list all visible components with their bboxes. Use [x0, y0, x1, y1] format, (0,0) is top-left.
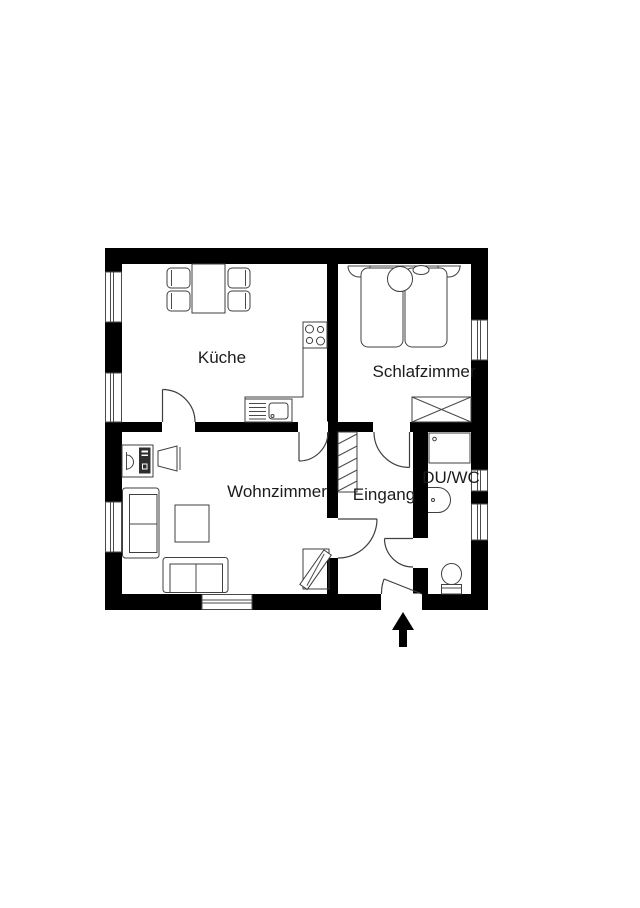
sofa	[123, 488, 160, 558]
sink	[245, 399, 292, 422]
window-bedroom-right	[472, 320, 488, 360]
room-label-living-room: Wohnzimmer	[227, 482, 327, 501]
computer-tower-icon	[140, 448, 151, 473]
room-label-kitchen: Küche	[198, 348, 246, 367]
entrance-furniture	[338, 432, 357, 492]
chair	[228, 291, 250, 311]
living-room-furniture	[122, 445, 331, 593]
chair	[167, 268, 190, 288]
double-bed	[348, 266, 461, 348]
door-living-kitchen	[299, 432, 328, 461]
bedroom-furniture	[348, 266, 471, 423]
room-label-bedroom: Schlafzimmer	[373, 362, 476, 381]
coat-rack	[338, 432, 357, 492]
door-bedroom	[374, 432, 410, 468]
window-kitchen-left-2	[106, 373, 122, 422]
entrance-arrow-icon	[392, 612, 414, 647]
room-label-entrance: Eingang	[353, 485, 415, 504]
coffee-table	[175, 505, 209, 542]
tv	[300, 549, 331, 589]
washbasin	[428, 488, 451, 513]
window-kitchen-left-1	[106, 272, 122, 322]
shower	[429, 433, 470, 463]
couch	[163, 558, 228, 593]
stove	[303, 322, 327, 348]
kitchen-furniture	[167, 264, 327, 422]
door-bath	[385, 539, 414, 568]
window-living-left	[106, 502, 122, 552]
toilet	[442, 564, 462, 595]
desk	[122, 445, 153, 477]
bathroom-furniture	[428, 433, 470, 594]
desk-chair	[158, 446, 180, 471]
dining-table	[192, 264, 225, 313]
chair	[167, 291, 190, 311]
window-bath-right-2	[472, 504, 488, 540]
floorplan-canvas: Küche Schlafzimmer Wohnzimmer Eingang DU…	[0, 0, 640, 908]
window-living-bottom	[202, 595, 252, 610]
door-living-entrance	[338, 519, 377, 558]
door-kitchen	[163, 390, 196, 423]
wardrobe	[412, 397, 471, 422]
room-label-bathroom: DU/WC	[422, 468, 480, 487]
chair	[228, 268, 250, 288]
